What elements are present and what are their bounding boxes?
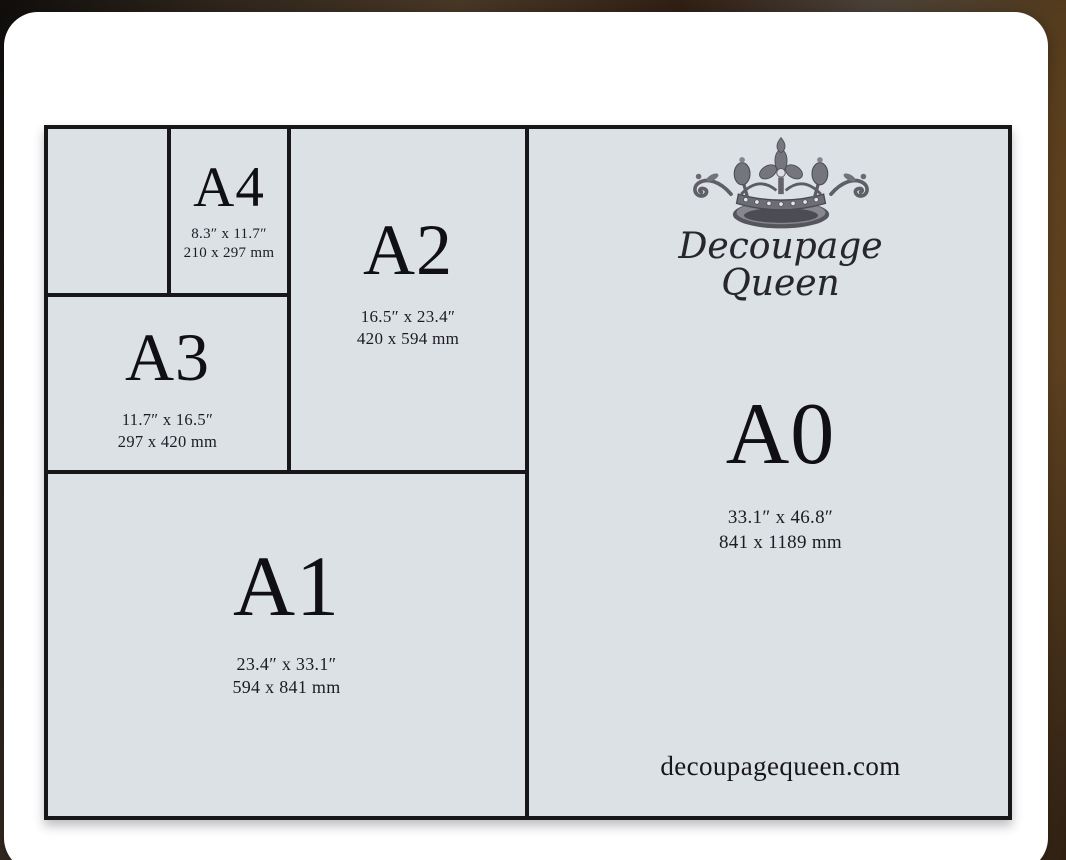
a1-label: A1 <box>233 543 340 629</box>
crown-icon <box>686 133 876 233</box>
a2-mm: 420 x 594 mm <box>357 328 459 350</box>
a1-inches: 23.4″ x 33.1″ <box>232 653 340 676</box>
cell-a4: A4 8.3″ x 11.7″ 210 x 297 mm <box>171 129 287 293</box>
brand-name-line1: Decoupage <box>541 229 1020 266</box>
a0-mm: 841 x 1189 mm <box>541 530 1020 555</box>
a2-inches: 16.5″ x 23.4″ <box>357 306 459 328</box>
screenshot-root: { "brand": { "line1": "Decoupage", "line… <box>0 0 1066 860</box>
a4-label: A4 <box>193 159 265 216</box>
cell-a5-blank <box>48 129 167 293</box>
a3-inches: 11.7″ x 16.5″ <box>118 409 217 430</box>
a3-mm: 297 x 420 mm <box>118 431 217 452</box>
a4-inches: 8.3″ x 11.7″ <box>184 225 275 244</box>
a4-mm: 210 x 297 mm <box>184 244 275 263</box>
a1-mm: 594 x 841 mm <box>232 676 340 699</box>
brand-website: decoupagequeen.com <box>541 751 1020 782</box>
a3-label: A3 <box>125 323 210 391</box>
cell-a2: A2 16.5″ x 23.4″ 420 x 594 mm <box>291 129 525 470</box>
cell-a1: A1 23.4″ x 33.1″ 594 x 841 mm <box>48 474 525 816</box>
brand-name-line2: Queen <box>541 266 1020 303</box>
a2-label: A2 <box>363 214 453 286</box>
a0-label: A0 <box>541 391 1020 479</box>
paper-size-chart: A4 8.3″ x 11.7″ 210 x 297 mm A3 11.7″ x … <box>44 125 1012 820</box>
cell-a0: Decoupage Queen A0 33.1″ x 46.8″ 841 x 1… <box>529 129 1008 816</box>
product-image-card: A4 8.3″ x 11.7″ 210 x 297 mm A3 11.7″ x … <box>4 12 1048 860</box>
cell-a3: A3 11.7″ x 16.5″ 297 x 420 mm <box>48 297 287 470</box>
a0-inches: 33.1″ x 46.8″ <box>541 505 1020 530</box>
